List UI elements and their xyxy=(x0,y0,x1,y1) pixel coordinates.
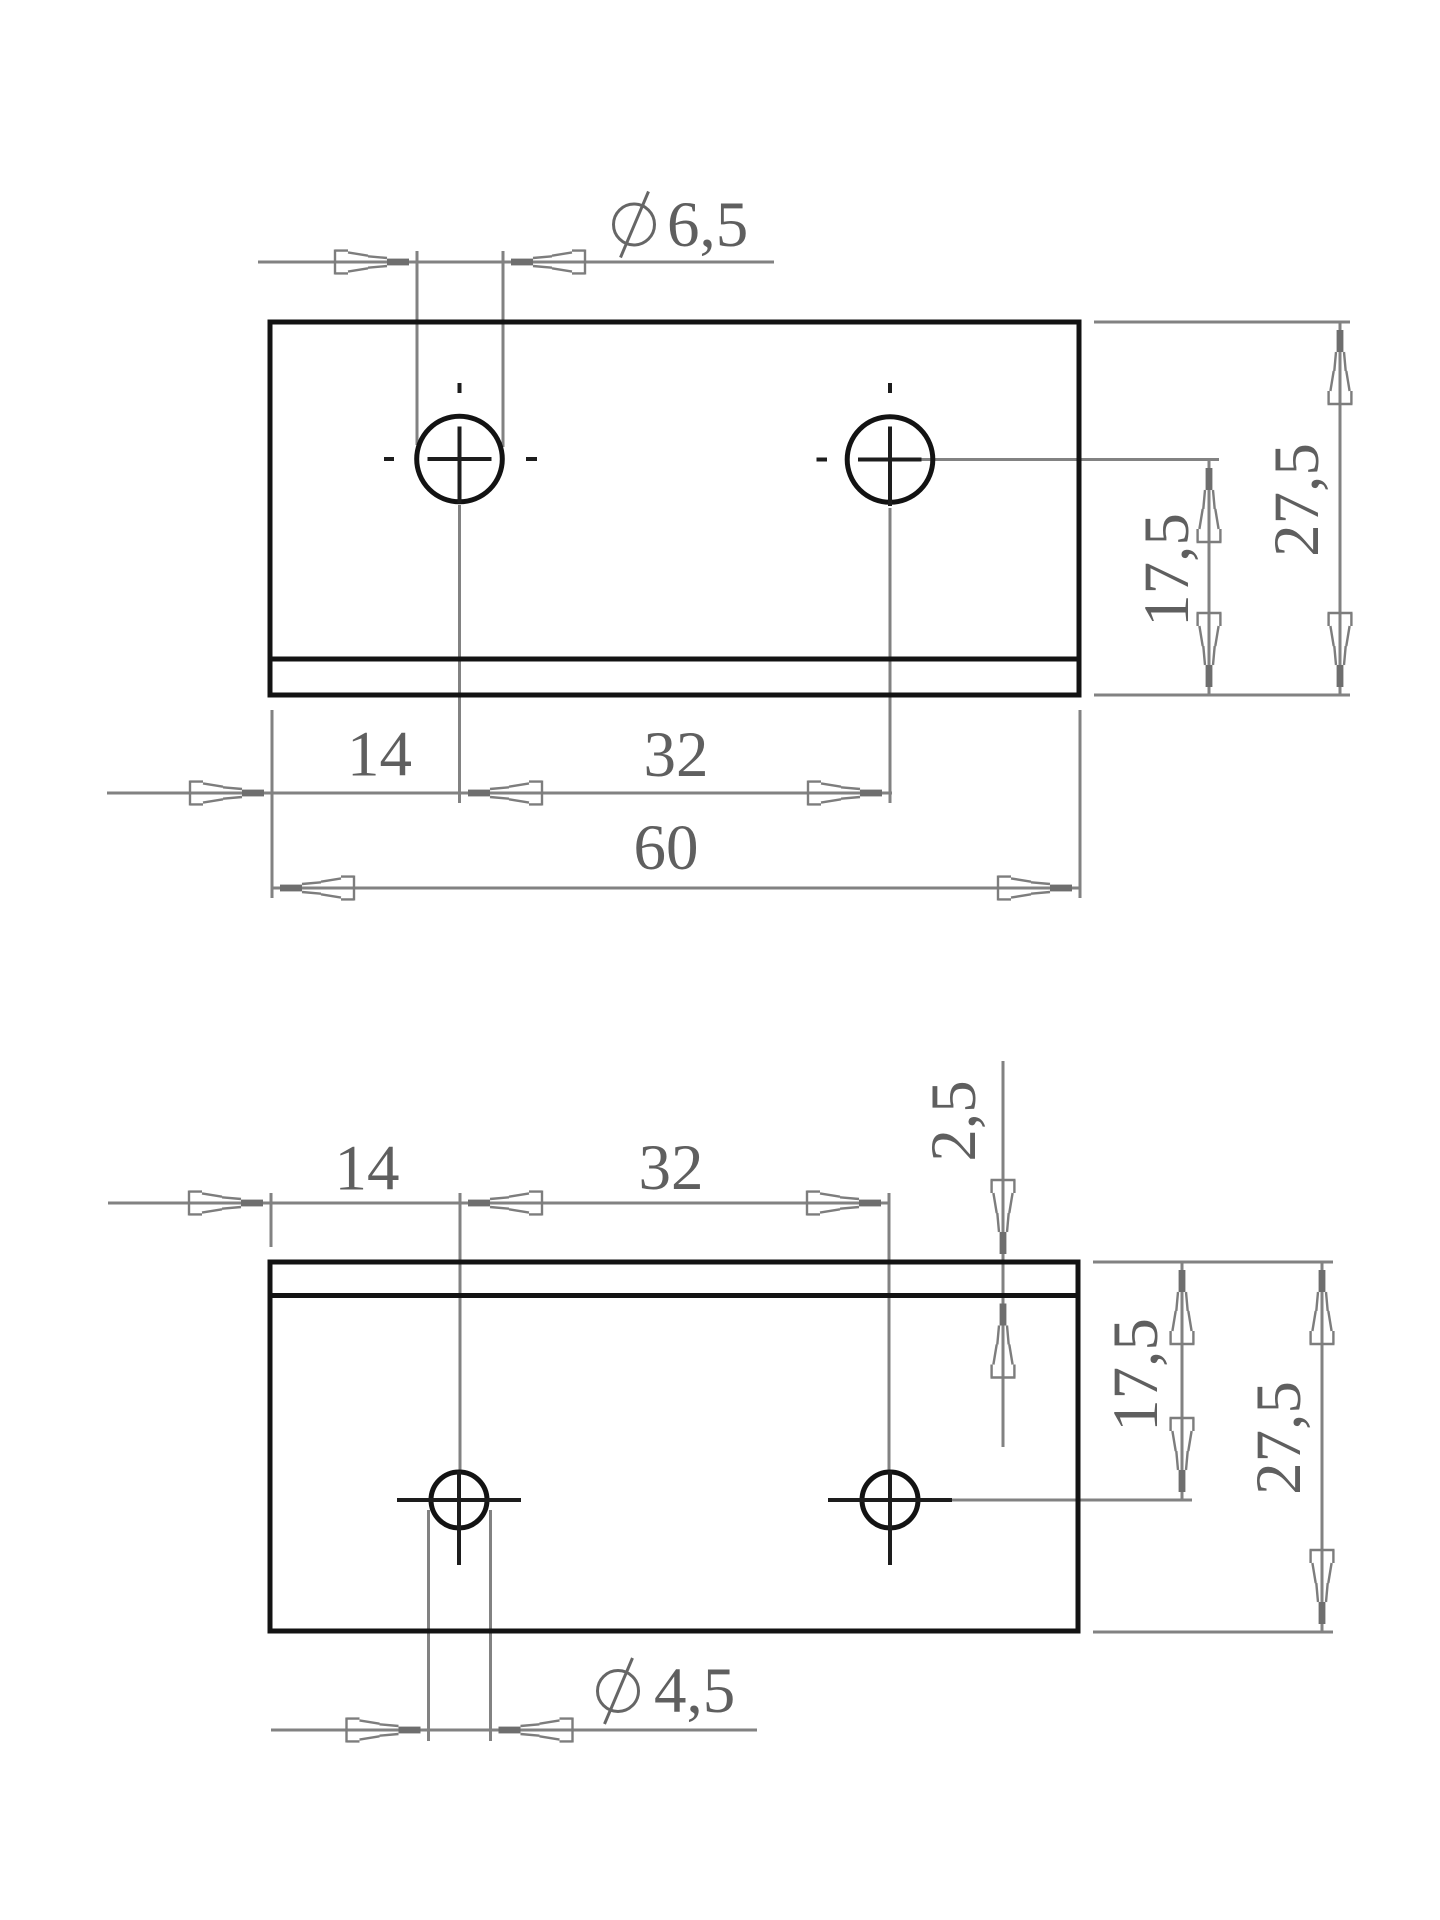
svg-text:27,5: 27,5 xyxy=(1261,443,1333,557)
svg-text:17,5: 17,5 xyxy=(1131,513,1203,627)
svg-text:17,5: 17,5 xyxy=(1100,1318,1172,1432)
svg-text:2,5: 2,5 xyxy=(918,1080,990,1161)
svg-text:14: 14 xyxy=(347,719,412,791)
svg-text:32: 32 xyxy=(644,719,709,791)
svg-text:14: 14 xyxy=(335,1133,400,1205)
svg-text:6,5: 6,5 xyxy=(667,189,748,261)
svg-text:27,5: 27,5 xyxy=(1243,1381,1315,1495)
svg-text:4,5: 4,5 xyxy=(654,1655,735,1727)
svg-text:32: 32 xyxy=(639,1132,704,1204)
svg-text:60: 60 xyxy=(634,812,699,884)
